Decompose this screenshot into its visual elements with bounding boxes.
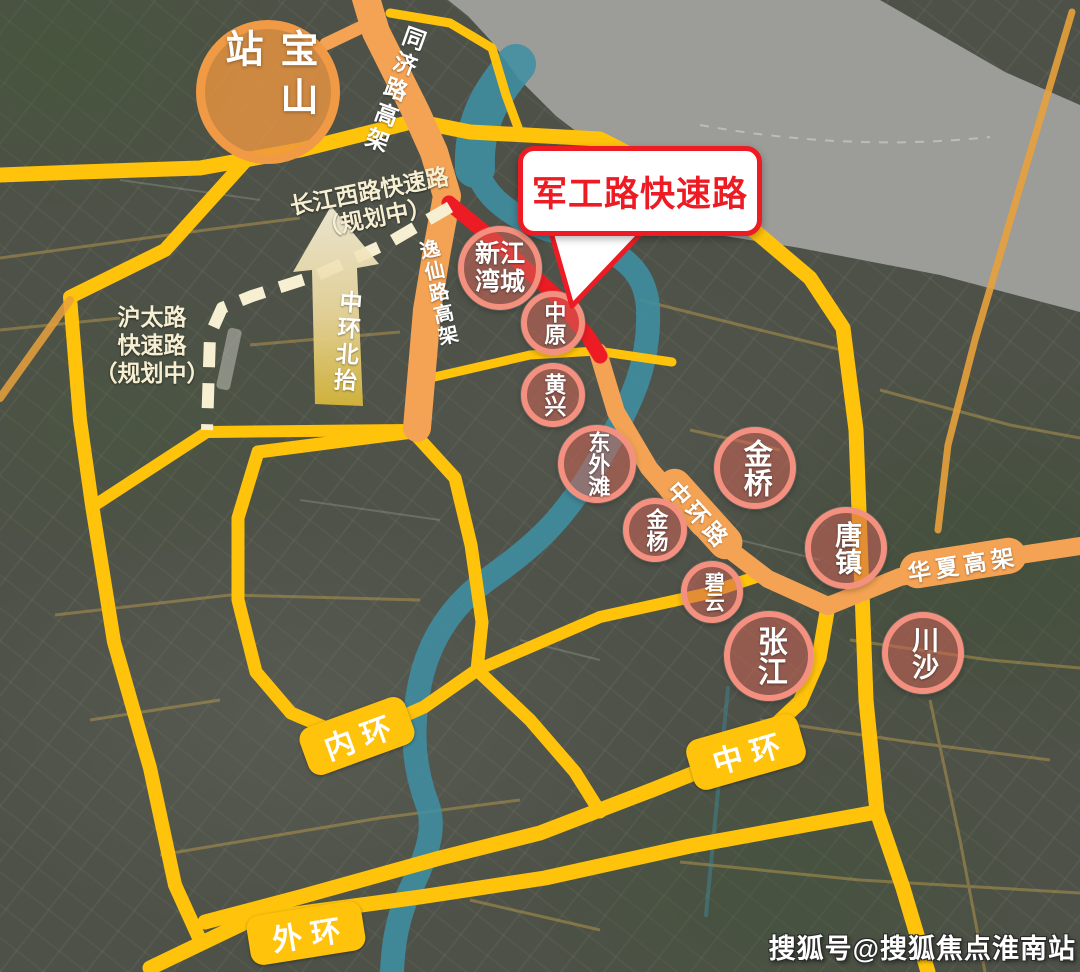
- station-circle-baoshan: 宝山站: [196, 20, 340, 164]
- district-circle-chuansha: 川沙: [882, 612, 964, 694]
- ring-road-outer-west: [70, 158, 248, 940]
- district-circle-xinjiangwancheng: 新江 湾城: [458, 226, 542, 310]
- district-label: 新江 湾城: [475, 240, 525, 296]
- district-label: 黄兴: [541, 373, 566, 417]
- road-label-hutai-planned: 沪太路 快速路 （规划中）: [72, 303, 232, 387]
- district-circle-huangxing: 黄兴: [521, 363, 585, 427]
- district-label: 张江: [752, 626, 786, 686]
- ring-road-inner-extension: [477, 670, 600, 812]
- district-label: 金杨: [643, 508, 668, 552]
- callout-label: 军工路快速路: [532, 166, 748, 217]
- district-label: 东外滩: [585, 431, 610, 497]
- map-canvas: 宝山站 新江 湾城 中原 黄兴 东外滩 金杨 碧云 金桥 唐镇 张江 川沙 同济…: [0, 0, 1080, 972]
- district-circle-tangzhen: 唐镇: [805, 507, 887, 589]
- district-label: 中原: [541, 301, 566, 345]
- district-label: 碧云: [701, 572, 723, 612]
- ring-road-inner-loop: [238, 432, 482, 739]
- station-label: 宝山站: [213, 29, 323, 155]
- district-circle-dongwaitan: 东外滩: [558, 425, 636, 503]
- district-label: 川沙: [908, 626, 938, 680]
- district-circle-biyun: 碧云: [681, 561, 743, 623]
- district-circle-zhangjiang: 张江: [724, 611, 814, 701]
- watermark-sohu: 搜狐号@搜狐焦点淮南站: [769, 927, 1076, 966]
- callout-junggong-road: 军工路快速路: [518, 146, 762, 236]
- district-label: 唐镇: [831, 521, 861, 575]
- district-circle-zhongyuan: 中原: [521, 291, 585, 355]
- elevated-hutai-ground: [0, 300, 70, 398]
- district-circle-jinqiao: 金桥: [714, 427, 796, 509]
- district-label: 金桥: [739, 439, 771, 497]
